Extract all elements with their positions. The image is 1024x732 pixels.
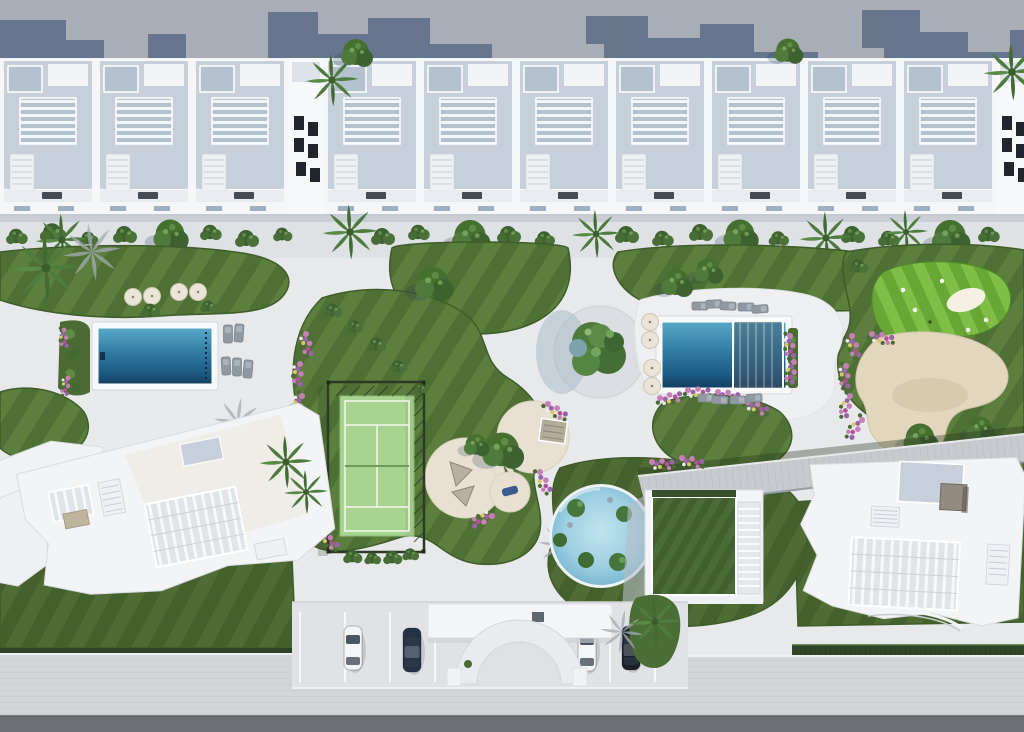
facade-shadow xyxy=(0,214,1024,222)
central-tree-plaza xyxy=(536,306,646,398)
pool-shade-pergola xyxy=(735,322,781,388)
clubhouse-green-roof xyxy=(622,490,763,612)
solar-tower-right xyxy=(996,58,1024,216)
sand-shadow xyxy=(892,378,968,412)
aerial-render-scene xyxy=(0,0,1024,732)
golf-hole xyxy=(928,320,931,323)
lap-pool-west xyxy=(98,328,212,384)
apartment-building-southeast xyxy=(796,446,1024,627)
townhouse-row xyxy=(0,39,1024,223)
road xyxy=(0,716,1024,732)
